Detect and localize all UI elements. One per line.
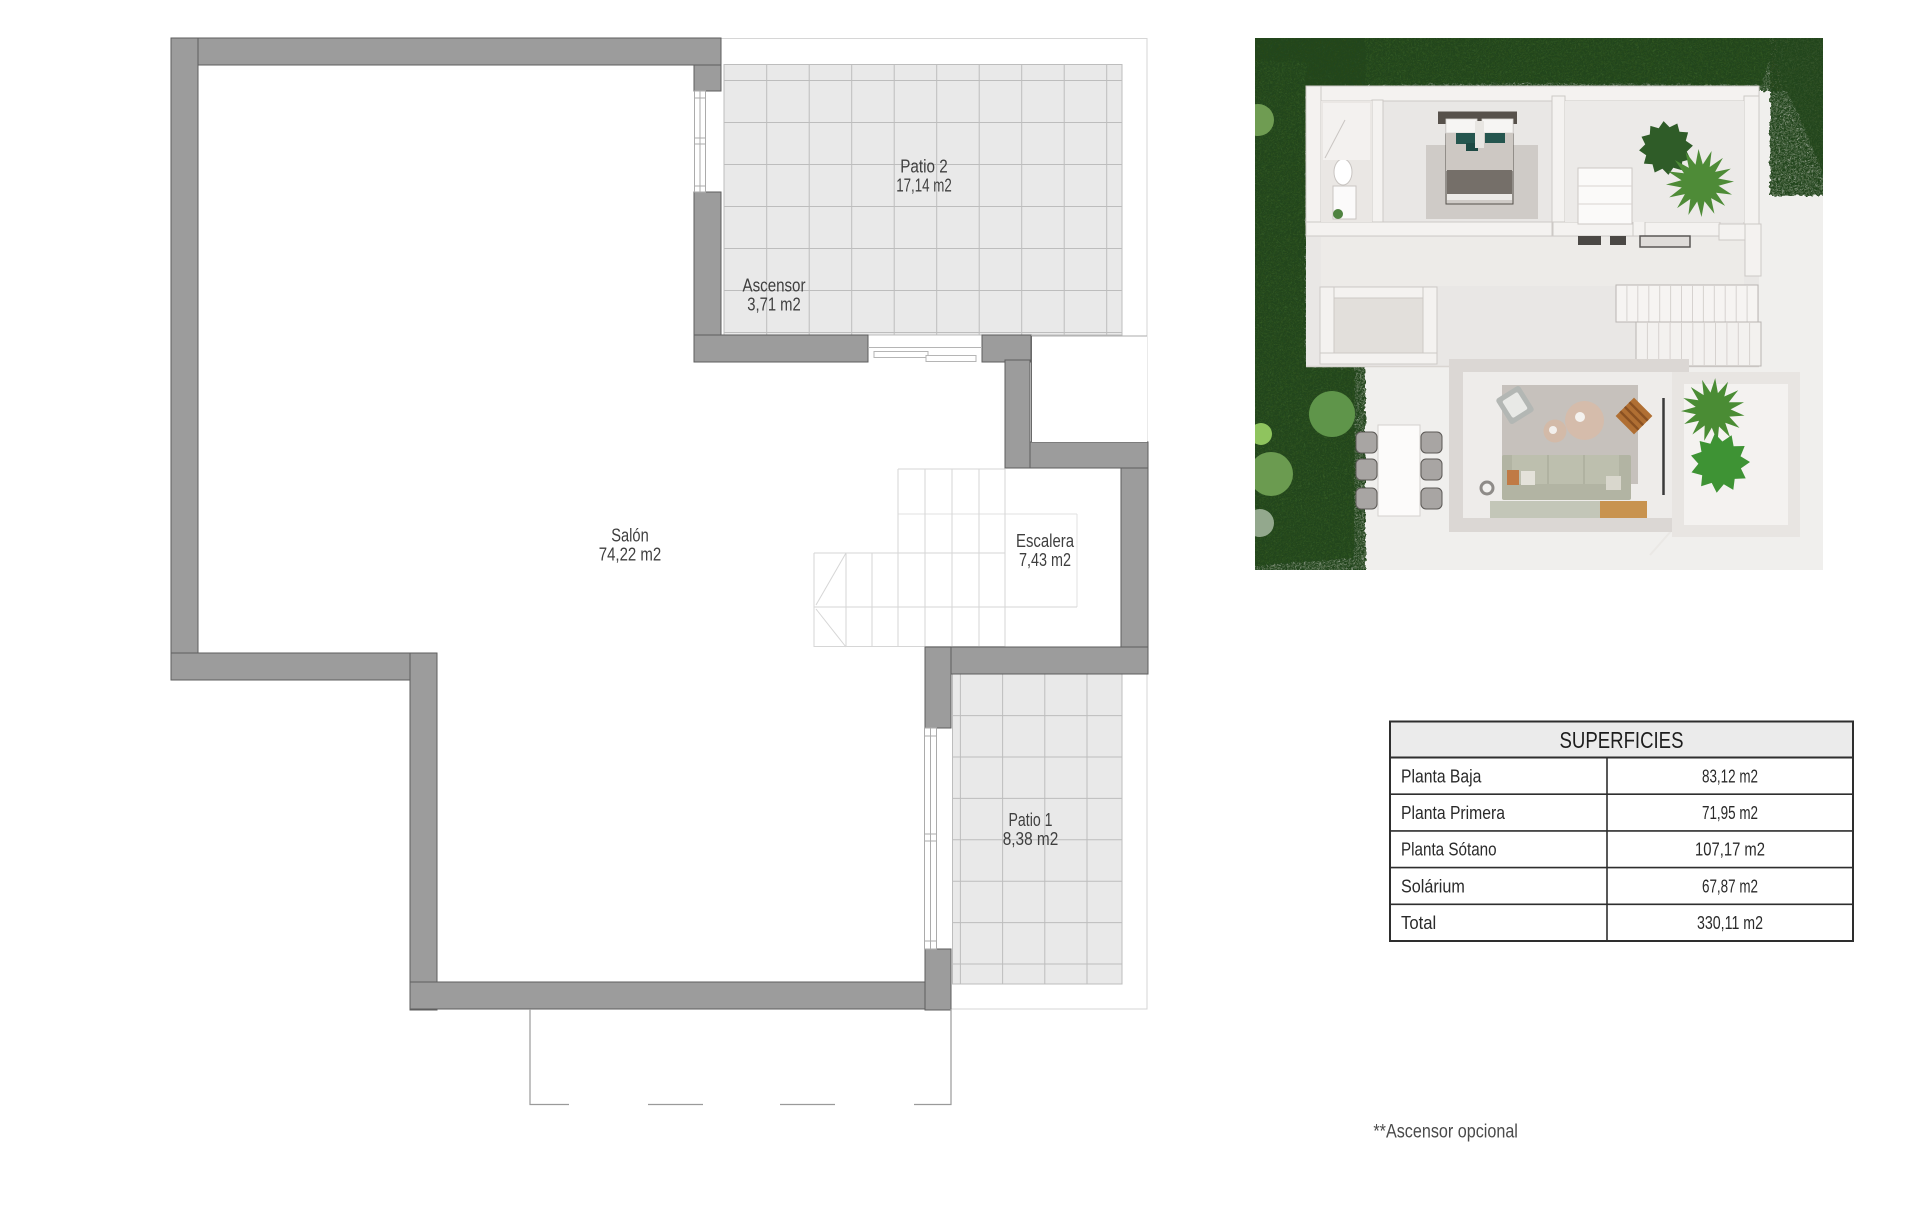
svg-text:Planta Baja: Planta Baja (1401, 766, 1482, 786)
svg-text:107,17 m2: 107,17 m2 (1695, 840, 1765, 860)
svg-text:Ascensor: Ascensor (743, 275, 806, 296)
svg-text:Total: Total (1401, 913, 1436, 933)
svg-text:83,12 m2: 83,12 m2 (1702, 766, 1758, 786)
svg-text:Solárium: Solárium (1401, 876, 1465, 896)
svg-text:Planta Primera: Planta Primera (1401, 803, 1506, 823)
svg-text:Patio 2: Patio 2 (900, 156, 948, 177)
svg-text:3,71 m2: 3,71 m2 (747, 294, 801, 315)
svg-text:Patio 1: Patio 1 (1009, 809, 1053, 830)
svg-text:**Ascensor opcional: **Ascensor opcional (1373, 1122, 1518, 1143)
svg-text:17,14 m2: 17,14 m2 (896, 175, 952, 196)
svg-text:71,95 m2: 71,95 m2 (1702, 803, 1758, 823)
svg-text:Salón: Salón (611, 525, 649, 546)
svg-text:8,38 m2: 8,38 m2 (1003, 828, 1059, 849)
svg-text:Escalera: Escalera (1016, 530, 1075, 551)
svg-text:7,43 m2: 7,43 m2 (1019, 549, 1071, 570)
svg-text:Planta Sótano: Planta Sótano (1401, 840, 1497, 860)
svg-text:74,22 m2: 74,22 m2 (599, 544, 662, 565)
svg-text:330,11 m2: 330,11 m2 (1697, 913, 1763, 933)
svg-text:SUPERFICIES: SUPERFICIES (1560, 727, 1684, 753)
svg-text:67,87 m2: 67,87 m2 (1702, 876, 1758, 896)
